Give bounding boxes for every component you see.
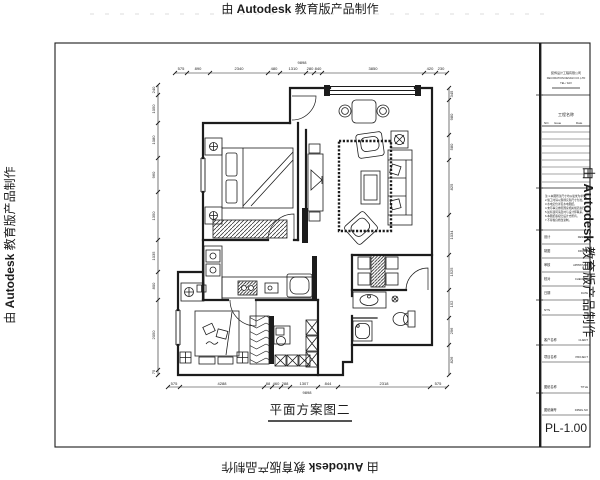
dim-label: 4288 xyxy=(218,381,228,386)
tv-cabinet xyxy=(308,144,323,221)
dim-label: 480 xyxy=(271,66,278,71)
watermark-right: 由 Autodesk 教育版产品制作 xyxy=(581,167,596,337)
dim-label: 152 xyxy=(449,300,454,307)
dim-label: 826 xyxy=(449,356,454,363)
double-bed xyxy=(222,148,293,208)
note-line: 3.水电定位详见水电图纸。 xyxy=(545,202,577,206)
wardrobe xyxy=(250,316,269,364)
dim-label: 420 xyxy=(427,66,434,71)
dim-label: 1034 xyxy=(449,230,454,240)
door-swings xyxy=(230,96,428,326)
dim-total: 9898 xyxy=(298,60,308,65)
dim-label: 1050 xyxy=(151,104,156,114)
dim-label: 345 xyxy=(449,90,454,97)
sign-row-cn: 制图 xyxy=(544,248,550,253)
sign-row-cn: 设计 xyxy=(544,234,551,239)
sheet-title-cn: 图纸名称 xyxy=(544,384,558,389)
sheet-title-en: TITLE xyxy=(581,385,589,389)
dim-label: 1525 xyxy=(449,267,454,277)
dim-label: 840 xyxy=(315,66,322,71)
wardrobe xyxy=(213,220,287,238)
dining-table xyxy=(352,100,376,123)
dim-label: 575 xyxy=(435,381,442,386)
toilet xyxy=(393,311,415,327)
dim-label: 88 xyxy=(266,381,271,386)
rev-col-date: Date xyxy=(576,121,583,125)
dim-label: 240 xyxy=(151,86,156,93)
note-line: 6.本图纸版权归设计方所有。 xyxy=(545,214,580,218)
project-label-en: PROJECT xyxy=(575,355,588,359)
dim-label: 825 xyxy=(449,183,454,190)
bathroom-fixtures xyxy=(353,292,415,341)
dim-label: 800 xyxy=(151,282,156,289)
plan-caption: 平面方案图二 xyxy=(269,402,350,417)
sink-icon xyxy=(360,295,378,306)
kitchen-counter xyxy=(222,277,315,298)
washing-machine xyxy=(353,321,372,341)
company-name-en: DECORATION DESIGN CO.,LTD xyxy=(547,76,586,80)
watermark-left: 由 Autodesk 教育版产品制作 xyxy=(2,166,17,323)
fridge xyxy=(287,274,312,297)
dim-label: 296 xyxy=(449,327,454,334)
sink-icon xyxy=(210,253,216,259)
dim-label: 2318 xyxy=(380,381,390,386)
dim-label: 1035 xyxy=(151,251,156,261)
dim-total: 9898 xyxy=(303,390,313,395)
dim-label: 75 xyxy=(151,369,156,374)
note-line: 2.施工时请以现场实际尺寸为准。 xyxy=(545,198,585,202)
plan-title: 平面方案图二 xyxy=(269,402,350,417)
dim-label: 575 xyxy=(171,381,178,386)
dim-label: 960 xyxy=(151,171,156,178)
note-line: 5.如有疑问请及时与设计师联系。 xyxy=(545,210,585,214)
storage-cabinet xyxy=(275,320,318,367)
small-appliance xyxy=(265,283,278,293)
dining-chair xyxy=(339,105,351,117)
chair xyxy=(358,273,370,285)
dim-label: 890 xyxy=(195,66,202,71)
project-label-cn: 项目名称 xyxy=(544,354,558,359)
dim-label: 1080 xyxy=(151,135,156,145)
watermark-bottom: 由 Autodesk 教育版产品制作 xyxy=(221,460,378,475)
sign-row-cn: 审核 xyxy=(544,262,551,267)
dim-label: 460 xyxy=(273,381,280,386)
drawing-frame xyxy=(55,43,590,447)
sink-icon xyxy=(210,267,216,273)
dim-label: 230 xyxy=(438,66,445,71)
table xyxy=(371,255,385,287)
dim-label: 3850 xyxy=(369,66,379,71)
rev-col-no: NO. xyxy=(544,121,550,125)
dim-label: 2340 xyxy=(235,66,245,71)
dim-label: 288 xyxy=(282,381,289,386)
kitchen-fixtures xyxy=(204,246,315,300)
rev-col-issue: Issue xyxy=(554,121,562,125)
chair xyxy=(386,257,398,269)
dim-label: 280 xyxy=(307,66,314,71)
scale-note: NTS xyxy=(544,308,550,312)
tv-icon xyxy=(311,170,322,190)
dim-label: 1350 xyxy=(151,211,156,221)
stove-icon xyxy=(238,281,257,295)
drawing-no-cn: 图纸编号 xyxy=(544,407,557,412)
chair xyxy=(358,257,370,269)
armchair xyxy=(343,210,378,245)
bedroom1-furniture xyxy=(205,138,293,238)
sheet-number: PL-1.00 xyxy=(545,421,587,435)
sign-row-cn: 校对 xyxy=(544,276,551,281)
note-line: 7.不得擅自修改复制。 xyxy=(545,218,571,222)
single-bed xyxy=(195,311,239,364)
dining-chair xyxy=(377,105,389,117)
dim-label: 580 xyxy=(449,143,454,150)
floor-plan: 575 890 2340 480 1310 280 840 3850 420 2… xyxy=(151,60,454,421)
cad-drawing-page: 由 Autodesk 教育版产品制作 由 Autodesk 教育版产品制作 由 … xyxy=(0,0,600,480)
company-name: 装饰设计工程有限公司 xyxy=(551,70,581,75)
dim-label: 1307 xyxy=(300,381,310,386)
floor-plan-canvas: 由 Autodesk 教育版产品制作 由 Autodesk 教育版产品制作 由 … xyxy=(0,0,600,480)
study-nook xyxy=(358,255,398,287)
dim-label: 1310 xyxy=(289,66,299,71)
watermark-top: 由 Autodesk 教育版产品制作 xyxy=(221,1,378,16)
dim-label: 575 xyxy=(178,66,185,71)
drawing-no-en: DRWG.NO xyxy=(575,408,588,412)
dim-label: 2050 xyxy=(151,330,156,340)
chair xyxy=(386,273,398,285)
dim-label: 844 xyxy=(325,381,332,386)
project-header: 工程名称 xyxy=(558,111,574,117)
armchair xyxy=(355,131,384,158)
dim-label: 980 xyxy=(449,113,454,120)
client-label-en: CLIENT xyxy=(578,338,588,342)
client-label-cn: 客户名称 xyxy=(544,337,558,342)
sign-row-cn: 日期 xyxy=(544,290,550,295)
company-contact: TEL / FAX xyxy=(560,81,572,85)
living-room-furniture xyxy=(308,100,412,246)
